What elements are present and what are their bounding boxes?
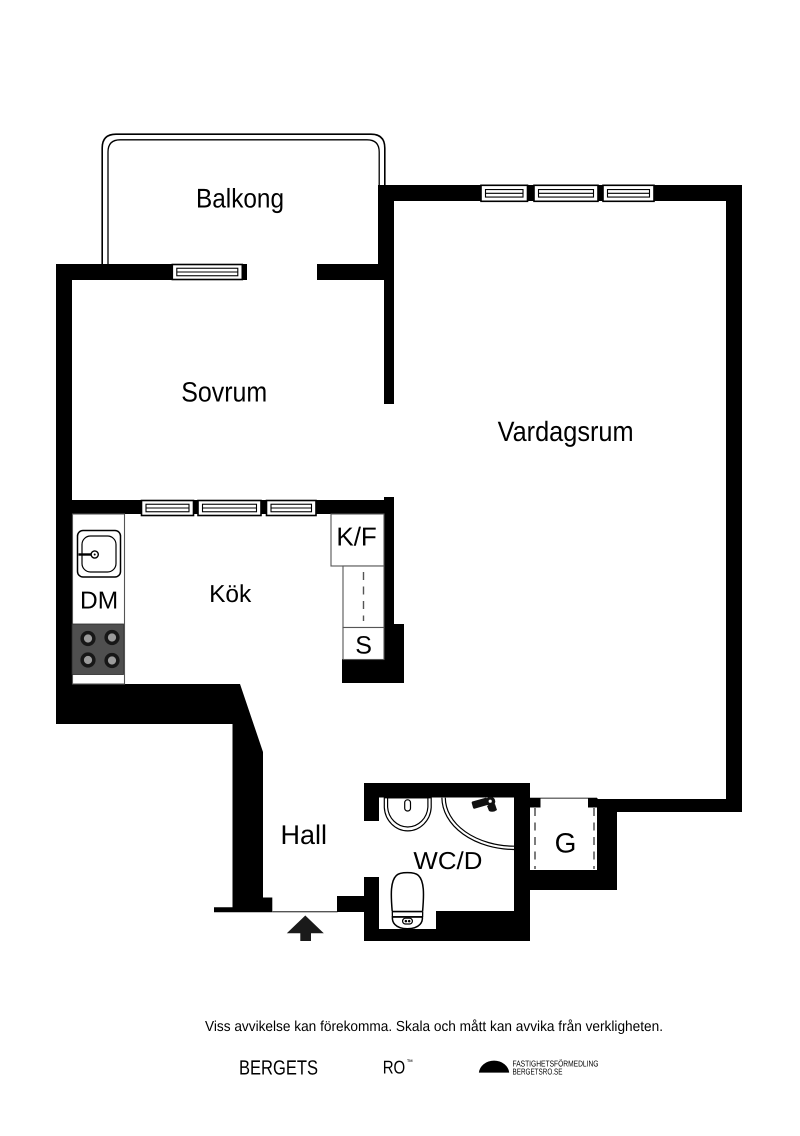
svg-text:K/F: K/F [336, 522, 376, 552]
svg-text:RO: RO [383, 1057, 406, 1078]
svg-text:G: G [555, 828, 577, 859]
svg-text:Balkong: Balkong [196, 184, 284, 214]
svg-text:Kök: Kök [209, 581, 252, 608]
svg-text:Vardagsrum: Vardagsrum [498, 416, 634, 447]
svg-text:S: S [355, 631, 372, 659]
svg-text:BERGETS: BERGETS [239, 1057, 318, 1080]
svg-text:WC/D: WC/D [413, 848, 482, 875]
svg-text:™: ™ [407, 1059, 414, 1066]
svg-text:Viss avvikelse kan förekomma.: Viss avvikelse kan förekomma. Skala och … [205, 1019, 663, 1035]
svg-text:Hall: Hall [281, 820, 328, 850]
svg-text:BERGETSRO.SE: BERGETSRO.SE [513, 1066, 563, 1076]
svg-text:Sovrum: Sovrum [181, 377, 267, 408]
svg-text:DM: DM [80, 588, 118, 615]
